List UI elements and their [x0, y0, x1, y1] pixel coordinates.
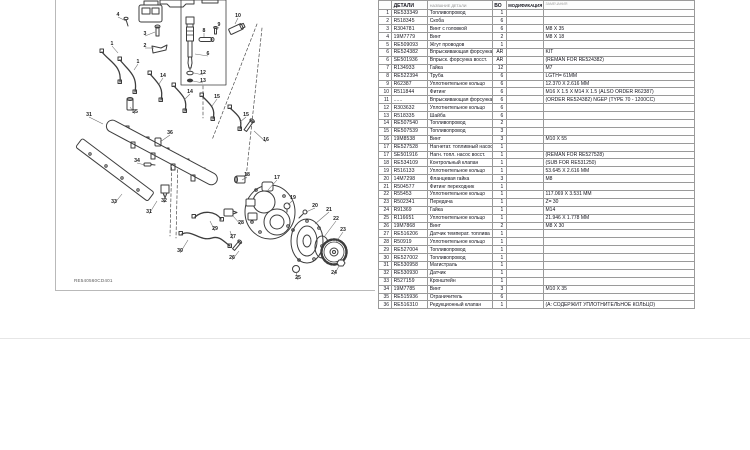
item-no: 27: [379, 230, 392, 238]
engine-mod: [506, 277, 543, 285]
part-number: SE501916: [392, 151, 428, 159]
remarks: [544, 41, 695, 49]
part-number: R502341: [392, 198, 428, 206]
part-name: Винт с головкой: [428, 25, 492, 33]
remarks: M14: [544, 206, 695, 214]
table-row: 35RE515936Ограничитель6: [379, 293, 695, 301]
callout-label: 34: [134, 158, 140, 164]
table-row: 29RE527004Топливопровод1: [379, 246, 695, 254]
item-no: 21: [379, 183, 392, 191]
remarks: 12.370 X 2.616 MM: [544, 80, 695, 88]
table-row: 21R504577Фитинг переходник1: [379, 183, 695, 191]
part-name: Фитинг: [428, 88, 492, 96]
remarks: M8: [544, 175, 695, 183]
callout-label: 25: [295, 275, 301, 281]
remarks: 117.069 X 3.531 MM: [544, 190, 695, 198]
remarks: [544, 277, 695, 285]
qty: 1: [492, 254, 506, 262]
table-row: 8RE522394Труба6LGTH= 61MM: [379, 72, 695, 80]
remarks: [544, 262, 695, 270]
engine-mod: [506, 214, 543, 222]
engine-mod: [506, 285, 543, 293]
table-row: 2014M7298Фланцевая гайка3M8: [379, 175, 695, 183]
part-number: RE527002: [392, 254, 428, 262]
part-name: Редукционный клапан: [428, 301, 492, 309]
qty: AR: [492, 48, 506, 56]
table-row: 36RE516310Редукционный клапан1(A: СОДЕРЖ…: [379, 301, 695, 309]
part-number: R516133: [392, 167, 428, 175]
engine-mod: [506, 80, 543, 88]
engine-mod: [506, 269, 543, 277]
item-no: 20: [379, 175, 392, 183]
part-name: Топливопровод: [428, 9, 492, 17]
part-name: Шайба: [428, 112, 492, 120]
table-row: 2R518345Скоба6: [379, 17, 695, 25]
part-number: RE515936: [392, 293, 428, 301]
item-no: 28: [379, 238, 392, 246]
table-row: 18RE534109Контрольный клапан1(SUB FOR RE…: [379, 159, 695, 167]
engine-mod: [506, 238, 543, 246]
part-name: Впрыскивающая форсунка: [428, 96, 492, 104]
qty: 6: [492, 72, 506, 80]
engine-mod: [506, 262, 543, 270]
part-name: Топливопровод: [428, 127, 492, 135]
diagram-line-art: [76, 0, 347, 273]
part-name: Впрыск. форсунка восст.: [428, 56, 492, 64]
part-number: R50919: [392, 238, 428, 246]
remarks: [544, 269, 695, 277]
part-name: Магистраль: [428, 262, 492, 270]
callout-label: 15: [214, 94, 220, 100]
engine-mod: [506, 190, 543, 198]
item-no: 35: [379, 293, 392, 301]
table-row: 5RE509093Жгут проводов1: [379, 41, 695, 49]
header-engine-mod: МОДИФИКАЦИЯ: [506, 1, 543, 10]
item-no: 34: [379, 285, 392, 293]
item-no: 7: [379, 64, 392, 72]
part-name: Фланцевая гайка: [428, 175, 492, 183]
item-no: 19: [379, 167, 392, 175]
callout-label: 13: [200, 78, 206, 84]
remarks: (A: СОДЕРЖИТ УПЛОТНИТЕЛЬНОЕ КОЛЬЦО): [544, 301, 695, 309]
part-name: Гайка: [428, 206, 492, 214]
remarks: [544, 112, 695, 120]
table-row: 13R518335Шайба6: [379, 112, 695, 120]
page-edge-divider: [0, 338, 750, 339]
callout-label: 10: [235, 13, 241, 19]
callout-label: 12: [200, 70, 206, 76]
table-row: 6RE524382Впрыскивающая форсункаARKIT: [379, 48, 695, 56]
callout-label: 14: [160, 73, 166, 79]
remarks: Z= 30: [544, 198, 695, 206]
callout-label: 31: [146, 209, 152, 215]
part-number: R511844: [392, 88, 428, 96]
callout-leader-line: [324, 221, 336, 237]
qty: AR: [492, 56, 506, 64]
part-number: RE522394: [392, 72, 428, 80]
remarks: M10 X 55: [544, 135, 695, 143]
engine-mod: [506, 9, 543, 17]
qty: 1: [492, 214, 506, 222]
callout-leader-line: [145, 32, 155, 36]
table-row: 9R62387Уплотнительное кольцо612.370 X 2.…: [379, 80, 695, 88]
part-number: RE534109: [392, 159, 428, 167]
qty: 1: [492, 198, 506, 206]
item-no: 17: [379, 143, 392, 151]
callout-label: 22: [333, 216, 339, 222]
part-name: Топливопровод: [428, 119, 492, 127]
qty: 6: [492, 96, 506, 104]
qty: 2: [492, 222, 506, 230]
part-number: R304781: [392, 25, 428, 33]
table-row: 24R91369Гайка1M14: [379, 206, 695, 214]
item-no: 12: [379, 104, 392, 112]
table-row: 25R116651Уплотнительное кольцо121.946 X …: [379, 214, 695, 222]
engine-mod: [506, 17, 543, 25]
remarks: M8 X 30: [544, 222, 695, 230]
table-row: 419M7779Винт2M8 X 18: [379, 33, 695, 41]
qty: 1: [492, 41, 506, 49]
table-row: 23R502341Передача1Z= 30: [379, 198, 695, 206]
remarks: M7: [544, 64, 695, 72]
engine-mod: [506, 222, 543, 230]
engine-mod: [506, 293, 543, 301]
callout-label: 26: [229, 255, 235, 261]
callout-label: 29: [212, 226, 218, 232]
part-name: Уплотнительное кольцо: [428, 214, 492, 222]
engine-mod: [506, 33, 543, 41]
part-number: R527159: [392, 277, 428, 285]
header-qty: ВО: [492, 1, 506, 10]
callout-label: 18: [244, 172, 250, 178]
qty: 1: [492, 143, 506, 151]
part-number: R518345: [392, 17, 428, 25]
part-name: Фитинг переходник: [428, 183, 492, 191]
diagram-panel: 4321114141515109861213313536343332311618…: [55, 0, 375, 291]
callout-label: 27: [230, 234, 236, 240]
engine-mod: [506, 151, 543, 159]
qty: 12: [492, 64, 506, 72]
callout-label: 32: [161, 198, 167, 204]
table-row: 31RE530958Магистраль1: [379, 262, 695, 270]
table-row: 3R304781Винт с головкой6M8 X 35: [379, 25, 695, 33]
part-name: Ограничитель: [428, 293, 492, 301]
item-no: 23: [379, 198, 392, 206]
table-row: 1619M8538Винт3M10 X 55: [379, 135, 695, 143]
part-number: RE509093: [392, 41, 428, 49]
part-number: RE533349: [392, 9, 428, 17]
engine-mod: [506, 254, 543, 262]
qty: 1: [492, 190, 506, 198]
callout-leader-line: [160, 135, 170, 142]
exploded-diagram: 4321114141515109861213313536343332311618…: [56, 0, 375, 290]
engine-mod: [506, 246, 543, 254]
engine-mod: [506, 143, 543, 151]
qty: 6: [492, 104, 506, 112]
qty: 1: [492, 206, 506, 214]
qty: 6: [492, 293, 506, 301]
engine-mod: [506, 96, 543, 104]
remarks: [544, 254, 695, 262]
part-number: RE530958: [392, 262, 428, 270]
engine-mod: [506, 301, 543, 309]
table-row: 19R516133Уплотнительное кольцо153.645 X …: [379, 167, 695, 175]
engine-mod: [506, 25, 543, 33]
figure-id: RE540560CD401: [74, 278, 113, 283]
part-number: R116651: [392, 214, 428, 222]
remarks: M8 X 35: [544, 25, 695, 33]
part-name: Труба: [428, 72, 492, 80]
part-number: ......: [392, 96, 428, 104]
qty: 1: [492, 9, 506, 17]
part-name: Датчик температ. топлива: [428, 230, 492, 238]
parts-table-panel: ДЕТАЛИ НАЗВАНИЕ ДЕТАЛИ ВО МОДИФИКАЦИЯ ЗА…: [378, 0, 698, 309]
remarks: [544, 127, 695, 135]
callout-label: 1: [137, 59, 140, 65]
callout-label: 6: [207, 51, 210, 57]
engine-mod: [506, 48, 543, 56]
item-no: 3: [379, 25, 392, 33]
part-number: RE516206: [392, 230, 428, 238]
callout-label: 35: [132, 109, 138, 115]
item-no: 9: [379, 80, 392, 88]
table-row: 15RE507539Топливопровод3: [379, 127, 695, 135]
callout-leader-line: [212, 99, 217, 106]
item-no: 10: [379, 88, 392, 96]
table-row: 17SE501916Нагн. топл. насос восст.1(REMA…: [379, 151, 695, 159]
part-number: 19M7779: [392, 33, 428, 41]
item-no: 31: [379, 262, 392, 270]
item-no: 22: [379, 190, 392, 198]
item-no: 32: [379, 269, 392, 277]
remarks: M10 X 35: [544, 285, 695, 293]
callout-label: 9: [218, 22, 221, 28]
item-no: 25: [379, 214, 392, 222]
qty: 1: [492, 262, 506, 270]
part-number: RE507539: [392, 127, 428, 135]
item-no: 11: [379, 96, 392, 104]
engine-mod: [506, 41, 543, 49]
engine-mod: [506, 127, 543, 135]
part-number: RE530930: [392, 269, 428, 277]
item-no: 13: [379, 112, 392, 120]
callout-label: 19: [290, 195, 296, 201]
callout-leader-line: [112, 46, 118, 53]
qty: 2: [492, 119, 506, 127]
part-name: Скоба: [428, 17, 492, 25]
callout-label: 15: [243, 112, 249, 118]
engine-mod: [506, 64, 543, 72]
engine-mod: [506, 56, 543, 64]
header-item-no: [379, 1, 392, 10]
remarks: M16 X 1.5 X M14 X 1.5 (ALSO ORDER R62387…: [544, 88, 695, 96]
part-name: Впрыскивающая форсунка: [428, 48, 492, 56]
item-no: 6: [379, 48, 392, 56]
remarks: [544, 230, 695, 238]
table-row: 30RE527002Топливопровод1: [379, 254, 695, 262]
remarks: 21.946 X 1.778 MM: [544, 214, 695, 222]
part-number: 14M7298: [392, 175, 428, 183]
part-number: 19M8538: [392, 135, 428, 143]
item-no: 33: [379, 277, 392, 285]
qty: 3: [492, 285, 506, 293]
part-name: Нагн. топл. насос восст.: [428, 151, 492, 159]
table-row: 28R50919Уплотнительное кольцо1: [379, 238, 695, 246]
callout-label: 4: [117, 12, 120, 18]
part-name: Контрольный клапан: [428, 159, 492, 167]
table-row: 7R134933Гайка12M7: [379, 64, 695, 72]
table-row: 22R55453Уплотнительное кольцо1117.069 X …: [379, 190, 695, 198]
remarks: [544, 119, 695, 127]
engine-mod: [506, 230, 543, 238]
remarks: (ORDER RE524382) NGEP (TYPE 70 - 1200CC): [544, 96, 695, 104]
table-row: 27RE516206Датчик температ. топлива1: [379, 230, 695, 238]
part-name: Нагнетат. топливный насос: [428, 143, 492, 151]
remarks: [544, 238, 695, 246]
qty: 6: [492, 25, 506, 33]
qty: 1: [492, 277, 506, 285]
qty: 6: [492, 80, 506, 88]
remarks: [544, 143, 695, 151]
part-number: 19M7785: [392, 285, 428, 293]
callout-label: 21: [326, 207, 332, 213]
engine-mod: [506, 104, 543, 112]
remarks: [544, 17, 695, 25]
item-no: 24: [379, 206, 392, 214]
table-row: 3419M7785Винт3M10 X 35: [379, 285, 695, 293]
callout-label: 8: [203, 28, 206, 34]
part-number: SE501936: [392, 56, 428, 64]
remarks: 53.645 X 2.616 MM: [544, 167, 695, 175]
remarks: [544, 293, 695, 301]
callout-label: 16: [263, 137, 269, 143]
item-no: 1: [379, 9, 392, 17]
callout-label: 20: [312, 203, 318, 209]
callout-label: 2: [144, 43, 147, 49]
item-no: 2: [379, 17, 392, 25]
callout-label: 23: [340, 227, 346, 233]
parts-table: ДЕТАЛИ НАЗВАНИЕ ДЕТАЛИ ВО МОДИФИКАЦИЯ ЗА…: [378, 0, 695, 309]
qty: 1: [492, 159, 506, 167]
table-row: 1RE533349Топливопровод1: [379, 9, 695, 17]
remarks: [544, 183, 695, 191]
part-name: Уплотнительное кольцо: [428, 167, 492, 175]
item-no: 36: [379, 301, 392, 309]
callout-leader-line: [315, 212, 329, 224]
item-no: 30: [379, 254, 392, 262]
qty: 1: [492, 151, 506, 159]
part-number: R91369: [392, 206, 428, 214]
qty: 1: [492, 246, 506, 254]
engine-mod: [506, 206, 543, 214]
engine-mod: [506, 135, 543, 143]
callout-label: 36: [167, 130, 173, 136]
remarks: KIT: [544, 48, 695, 56]
remarks: [544, 246, 695, 254]
engine-mod: [506, 183, 543, 191]
part-number: R55453: [392, 190, 428, 198]
item-no: 8: [379, 72, 392, 80]
item-no: 4: [379, 33, 392, 41]
item-no: 29: [379, 246, 392, 254]
part-number: R504577: [392, 183, 428, 191]
qty: 6: [492, 112, 506, 120]
item-no: 6: [379, 56, 392, 64]
qty: 3: [492, 135, 506, 143]
engine-mod: [506, 119, 543, 127]
callout-label: 24: [331, 270, 337, 276]
callout-leader-line: [89, 117, 103, 124]
part-name: Уплотнительное кольцо: [428, 190, 492, 198]
remarks: (REMAN FOR RE527528): [544, 151, 695, 159]
part-name: Винт: [428, 285, 492, 293]
callout-label: 3: [144, 31, 147, 37]
callout-label: 14: [187, 89, 193, 95]
table-row: 11......Впрыскивающая форсунка6(ORDER RE…: [379, 96, 695, 104]
remarks: LGTH= 61MM: [544, 72, 695, 80]
table-row: 6SE501936Впрыск. форсунка восст.AR(REMAN…: [379, 56, 695, 64]
header-remarks: ЗАМЕЧАНИЯ: [544, 1, 695, 10]
item-no: 17: [379, 151, 392, 159]
callout-label: 33: [111, 199, 117, 205]
remarks: M8 X 18: [544, 33, 695, 41]
item-no: 26: [379, 222, 392, 230]
part-name: Топливопровод: [428, 254, 492, 262]
part-name: Уплотнительное кольцо: [428, 104, 492, 112]
qty: 1: [492, 301, 506, 309]
item-no: 16: [379, 135, 392, 143]
table-row: 12R303632Уплотнительное кольцо6: [379, 104, 695, 112]
qty: 1: [492, 167, 506, 175]
engine-mod: [506, 159, 543, 167]
qty: 3: [492, 127, 506, 135]
qty: 6: [492, 17, 506, 25]
callout-label: 1: [111, 41, 114, 47]
qty: 1: [492, 230, 506, 238]
table-row: 14RE507540Топливопровод2: [379, 119, 695, 127]
qty: 6: [492, 88, 506, 96]
part-number: RE524382: [392, 48, 428, 56]
parts-table-body: 1RE533349Топливопровод12R518345Скоба63R3…: [379, 9, 695, 309]
header-part-number: ДЕТАЛИ: [392, 1, 428, 10]
header-part-name: НАЗВАНИЕ ДЕТАЛИ: [428, 1, 492, 10]
qty: 3: [492, 175, 506, 183]
callout-label: 31: [86, 112, 92, 118]
engine-mod: [506, 88, 543, 96]
part-name: Кронштейн: [428, 277, 492, 285]
part-number: 19M7868: [392, 222, 428, 230]
callout-label: 30: [177, 248, 183, 254]
part-number: R518335: [392, 112, 428, 120]
part-name: Уплотнительное кольцо: [428, 80, 492, 88]
item-no: 5: [379, 41, 392, 49]
remarks: [544, 104, 695, 112]
item-no: 18: [379, 159, 392, 167]
part-name: Датчик: [428, 269, 492, 277]
remarks: [544, 9, 695, 17]
part-name: Винт: [428, 33, 492, 41]
part-number: RE527004: [392, 246, 428, 254]
table-row: 17RE527528Нагнетат. топливный насос1: [379, 143, 695, 151]
callout-label: 28: [238, 220, 244, 226]
part-name: Винт: [428, 222, 492, 230]
engine-mod: [506, 167, 543, 175]
part-name: Гайка: [428, 64, 492, 72]
engine-mod: [506, 198, 543, 206]
part-name: Топливопровод: [428, 246, 492, 254]
qty: 1: [492, 238, 506, 246]
remarks: (SUB FOR RE531250): [544, 159, 695, 167]
